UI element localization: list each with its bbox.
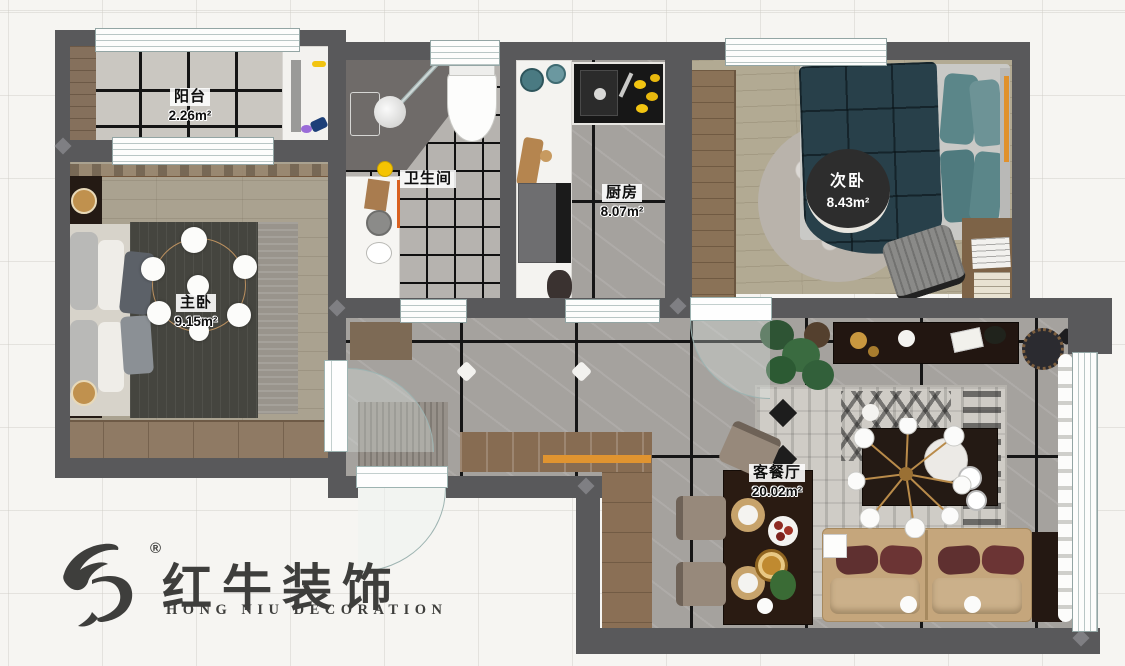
master-bedroom-door <box>324 360 348 452</box>
fruit <box>784 526 793 535</box>
sink-drain <box>594 88 606 100</box>
lemon <box>634 80 646 89</box>
bathroom-window <box>430 40 500 66</box>
master-wardrobe <box>58 420 330 460</box>
balcony-window <box>95 28 300 52</box>
wall <box>272 140 330 162</box>
dining-plate-inner <box>738 573 758 593</box>
entry-cabinet <box>602 472 652 628</box>
bed-pillow <box>70 232 98 310</box>
lemon <box>650 74 660 82</box>
second-bedroom-window <box>725 38 887 66</box>
bathroom-sliding-door <box>400 299 467 323</box>
nightstand-lamp <box>71 380 97 406</box>
floor-plan-canvas: 阳台 2.26m² 主卧 9.15m² 卫生间 厨房 8.07m² 次卧 8.4… <box>0 0 1125 666</box>
fruit-plate <box>768 516 798 546</box>
balcony-cabinet-panel <box>291 60 301 132</box>
balcony-master-window <box>112 137 274 165</box>
balcony-name: 阳台 <box>170 88 210 106</box>
chandelier-bulb <box>141 257 165 281</box>
kitchen-bowl <box>546 64 566 84</box>
wall <box>1012 42 1030 312</box>
kitchen-sliding-door <box>565 299 660 323</box>
vanity-basin <box>366 242 392 264</box>
bathroom-label: 卫生间 <box>380 170 476 188</box>
rug-diamond <box>769 399 797 427</box>
nightstand-lamp <box>71 188 97 214</box>
floor-lamp-bulb <box>900 596 917 613</box>
master-bedroom-name: 主卧 <box>176 294 216 312</box>
living-dining-name: 客餐厅 <box>749 464 805 482</box>
kitchen-label: 厨房 8.07m² <box>562 184 682 219</box>
kitchen-bowl <box>520 68 544 92</box>
master-bedroom-label: 主卧 9.15m² <box>136 294 256 329</box>
wall <box>770 298 1112 318</box>
console-decor-gold <box>868 346 879 357</box>
chandelier-bulb <box>181 227 207 253</box>
second-bedroom-name: 次卧 <box>830 167 866 191</box>
sofa-pillow-red <box>937 545 981 576</box>
bathroom-name: 卫生间 <box>400 170 456 188</box>
balcony-wood-deck <box>70 46 96 142</box>
lemon <box>646 92 658 101</box>
sofa-pillow-red <box>981 545 1025 576</box>
plant-leaf <box>802 360 834 390</box>
shower-head <box>374 96 406 128</box>
kitchen-area: 8.07m² <box>562 205 682 219</box>
sofa-side-table <box>823 534 847 558</box>
book-stack <box>971 237 1011 269</box>
lemon <box>636 104 648 113</box>
master-bedroom-area: 9.15m² <box>136 315 256 329</box>
logo-subtitle-text: HONG NIU DECORATION <box>166 602 447 619</box>
sofa-divider <box>925 530 928 620</box>
dining-chair <box>676 562 726 606</box>
fruit <box>774 521 783 530</box>
balcony-area: 2.26m² <box>130 109 250 123</box>
shoe-bench-orange-trim <box>543 455 651 463</box>
floor-lamp-bulb <box>964 596 981 613</box>
sputnik-chandelier <box>848 418 978 538</box>
toilet <box>447 66 497 142</box>
fruit <box>776 532 785 541</box>
second-bedroom-door <box>690 297 772 321</box>
hongniu-bull-icon <box>58 536 150 632</box>
vanity-sink <box>366 210 392 236</box>
kitchen-name: 厨房 <box>602 184 642 202</box>
wall <box>70 140 114 162</box>
wall <box>330 476 358 498</box>
console-decor-gold <box>850 332 867 349</box>
wall <box>500 42 516 318</box>
desk-drawers <box>974 272 1010 300</box>
second-bedroom-area: 8.43m² <box>827 195 870 210</box>
console-decor-ball <box>898 330 915 347</box>
wall <box>576 628 1100 654</box>
console-plant <box>984 326 1006 344</box>
living-dining-area: 20.02m² <box>712 485 842 499</box>
second-bedroom-wardrobe <box>692 70 736 302</box>
headboard-orange-trim <box>1004 76 1009 162</box>
master-curtain <box>70 164 330 177</box>
fridge <box>518 183 558 263</box>
second-bedroom-label: 次卧 8.43m² <box>806 149 890 233</box>
plant-leaf <box>766 356 796 384</box>
chandelier-bulb <box>233 255 257 279</box>
curtain-wave <box>1058 354 1073 622</box>
balcony-label: 阳台 2.26m² <box>130 88 250 123</box>
registered-mark: ® <box>150 540 161 557</box>
table-plant <box>770 570 796 600</box>
living-dining-label: 客餐厅 20.02m² <box>712 464 842 499</box>
dining-plate-inner <box>738 505 758 525</box>
decor-yellow-item <box>312 61 326 67</box>
wall <box>55 458 345 478</box>
entry-door <box>356 466 448 488</box>
sofa-pillow-red <box>879 545 923 576</box>
shoe-bench <box>460 432 652 472</box>
kitchen-jar <box>540 150 552 162</box>
dining-chair <box>676 496 726 540</box>
table-ball <box>757 598 773 614</box>
living-room-window <box>1072 352 1098 632</box>
wall <box>55 30 70 478</box>
wall <box>665 42 692 318</box>
hall-mat-brown <box>350 322 412 360</box>
